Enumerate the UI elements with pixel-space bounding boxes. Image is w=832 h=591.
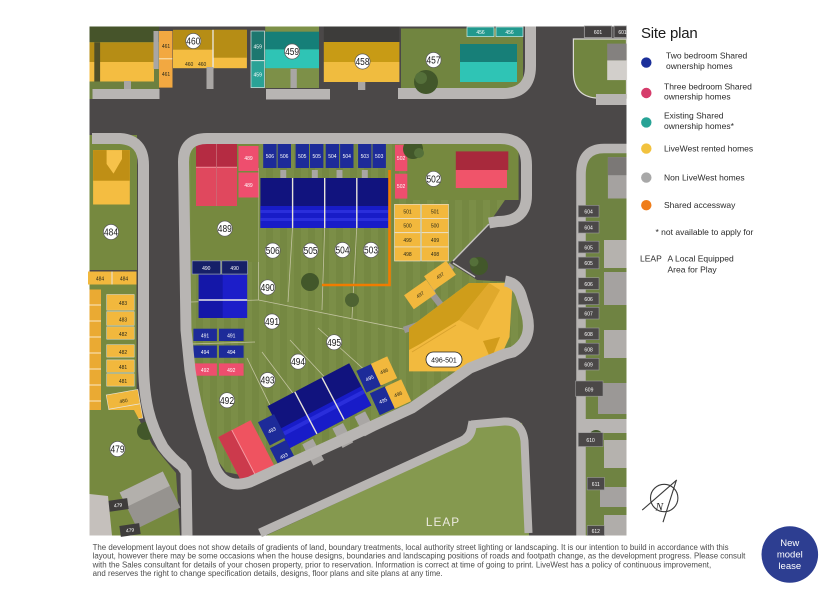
svg-text:605: 605: [584, 245, 593, 251]
svg-text:489: 489: [218, 224, 232, 235]
svg-text:481: 481: [119, 365, 128, 371]
svg-text:502: 502: [427, 175, 441, 186]
svg-text:457: 457: [427, 56, 441, 67]
svg-text:504: 504: [336, 246, 350, 257]
svg-text:lease: lease: [778, 561, 801, 572]
svg-text:Existing Shared: Existing Shared: [664, 111, 724, 121]
svg-text:N: N: [655, 502, 665, 514]
svg-text:607: 607: [584, 311, 593, 317]
svg-text:484: 484: [104, 228, 118, 239]
svg-text:610: 610: [586, 438, 595, 444]
svg-text:459: 459: [254, 73, 263, 79]
svg-text:498: 498: [403, 252, 412, 258]
svg-text:456: 456: [476, 30, 485, 36]
svg-text:483: 483: [119, 318, 128, 324]
svg-text:layout, however there may be s: layout, however there may be some occasi…: [93, 552, 747, 561]
svg-text:ownership homes*: ownership homes*: [664, 121, 735, 131]
svg-text:481: 481: [119, 379, 128, 385]
svg-text:503: 503: [364, 246, 378, 257]
svg-text:490: 490: [261, 283, 275, 294]
svg-text:503: 503: [361, 154, 370, 160]
svg-text:460: 460: [198, 62, 207, 68]
svg-text:461: 461: [162, 44, 171, 50]
svg-text:502: 502: [397, 184, 406, 190]
svg-text:506: 506: [266, 246, 280, 257]
svg-text:492: 492: [201, 368, 210, 374]
svg-text:605: 605: [584, 261, 593, 267]
svg-text:491: 491: [265, 317, 279, 328]
svg-text:492: 492: [220, 396, 234, 407]
svg-text:458: 458: [356, 57, 370, 68]
svg-text:612: 612: [592, 529, 601, 535]
svg-text:LEAP: LEAP: [640, 254, 662, 264]
svg-text:479: 479: [111, 445, 125, 456]
svg-text:460: 460: [186, 36, 200, 47]
svg-text:503: 503: [375, 154, 384, 160]
svg-text:604: 604: [584, 210, 593, 216]
svg-text:505: 505: [298, 154, 307, 160]
svg-text:504: 504: [328, 154, 337, 160]
svg-text:The development layout does no: The development layout does not show det…: [93, 543, 729, 552]
svg-text:506: 506: [280, 154, 289, 160]
svg-text:New: New: [780, 538, 799, 549]
svg-text:611: 611: [592, 482, 600, 488]
svg-text:489: 489: [244, 183, 253, 189]
svg-text:482: 482: [119, 350, 128, 356]
svg-text:501: 501: [403, 210, 412, 216]
svg-text:493: 493: [261, 376, 275, 387]
svg-text:Two bedroom Shared: Two bedroom Shared: [666, 51, 748, 61]
svg-text:491: 491: [201, 333, 210, 339]
svg-text:499: 499: [403, 238, 412, 244]
svg-text:479: 479: [126, 527, 135, 534]
svg-text:Non LiveWest homes: Non LiveWest homes: [664, 173, 745, 183]
svg-text:495: 495: [327, 338, 341, 349]
svg-text:484: 484: [96, 277, 105, 283]
svg-text:601: 601: [594, 30, 603, 36]
svg-text:500: 500: [403, 224, 412, 230]
svg-text:A Local Equipped: A Local Equipped: [668, 254, 734, 264]
svg-text:501: 501: [431, 210, 440, 216]
svg-text:492: 492: [227, 368, 236, 374]
svg-text:Shared accessway: Shared accessway: [664, 200, 736, 210]
svg-text:* not available to apply for: * not available to apply for: [656, 227, 754, 237]
svg-text:ownership homes: ownership homes: [664, 92, 731, 102]
svg-text:483: 483: [119, 301, 128, 307]
svg-text:459: 459: [285, 47, 299, 58]
svg-text:459: 459: [254, 45, 263, 51]
svg-text:609: 609: [585, 388, 594, 394]
svg-text:504: 504: [343, 154, 352, 160]
svg-text:505: 505: [313, 154, 322, 160]
svg-text:494: 494: [291, 357, 305, 368]
svg-text:494: 494: [201, 350, 210, 356]
svg-text:500: 500: [431, 224, 440, 230]
svg-text:490: 490: [230, 266, 239, 272]
svg-text:601: 601: [618, 30, 627, 36]
svg-text:Area for Play: Area for Play: [668, 264, 718, 274]
svg-text:ownership homes: ownership homes: [666, 61, 733, 71]
svg-text:model: model: [777, 550, 803, 561]
svg-text:608: 608: [584, 347, 593, 353]
svg-text:479: 479: [114, 502, 123, 509]
svg-text:460: 460: [185, 62, 194, 68]
svg-text:LEAP: LEAP: [426, 515, 460, 529]
svg-text:484: 484: [120, 277, 129, 283]
svg-text:461: 461: [162, 72, 171, 78]
svg-text:Site plan: Site plan: [641, 25, 698, 42]
svg-text:499: 499: [431, 238, 440, 244]
svg-text:496-501: 496-501: [431, 358, 457, 365]
svg-text:606: 606: [584, 297, 593, 303]
svg-text:505: 505: [304, 246, 318, 257]
svg-text:482: 482: [119, 332, 128, 338]
svg-text:608: 608: [584, 332, 593, 338]
svg-text:456: 456: [505, 30, 514, 36]
svg-text:506: 506: [266, 154, 275, 160]
svg-text:490: 490: [202, 266, 211, 272]
svg-text:609: 609: [584, 362, 593, 368]
svg-text:489: 489: [244, 156, 253, 162]
svg-text:498: 498: [431, 252, 440, 258]
svg-text:606: 606: [584, 282, 593, 288]
svg-text:and reserves the right to chan: and reserves the right to change specifi…: [93, 569, 443, 578]
svg-text:502: 502: [397, 156, 406, 162]
svg-text:491: 491: [227, 333, 236, 339]
svg-text:LiveWest rented homes: LiveWest rented homes: [664, 144, 753, 154]
svg-text:with the Sales consultant for: with the Sales consultant for details of…: [92, 560, 712, 569]
svg-text:Three bedroom Shared: Three bedroom Shared: [664, 81, 752, 91]
svg-text:604: 604: [584, 225, 593, 231]
svg-text:494: 494: [227, 350, 236, 356]
